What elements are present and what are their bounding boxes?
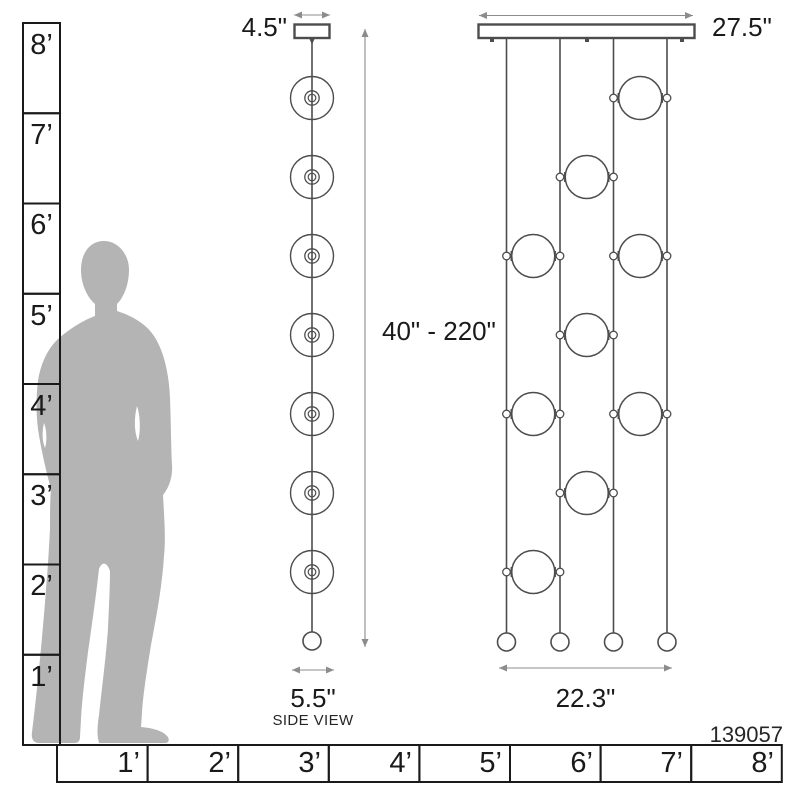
front-counterweight-ball [605,633,623,651]
horizontal-ruler-label-2ft: 2’ [148,745,231,782]
connector-ball [610,331,618,339]
front-glass-sphere [556,156,617,199]
canopy-screw [680,39,684,42]
height-range-label: 40" - 220" [382,317,552,345]
connector-ball [663,410,671,418]
connector-ball [503,410,511,418]
horizontal-ruler-label-8ft: 8’ [691,745,774,782]
connector-ball [556,252,564,260]
vertical-ruler-label-8ft: 8’ [23,29,60,61]
front-glass-sphere [556,314,617,357]
horizontal-ruler-label-5ft: 5’ [419,745,502,782]
horizontal-ruler-label-6ft: 6’ [510,745,593,782]
front-glass-sphere [503,393,564,436]
vertical-ruler-label-2ft: 2’ [23,570,60,602]
side-counterweight-ball [303,632,321,650]
canopy-screw [490,39,494,42]
front-glass-sphere [610,393,671,436]
horizontal-ruler-label-1ft: 1’ [57,745,140,782]
connector-ball [503,252,511,260]
connector-ball [556,568,564,576]
front-glass-sphere [503,235,564,278]
vertical-ruler-label-5ft: 5’ [23,300,60,332]
front-counterweight-ball [658,633,676,651]
vertical-ruler-label-7ft: 7’ [23,119,60,151]
vertical-ruler-label-1ft: 1’ [23,661,60,693]
front-counterweight-ball [551,633,569,651]
horizontal-ruler-label-3ft: 3’ [238,745,321,782]
connector-ball [503,568,511,576]
side-canopy-width-label: 4.5" [205,13,287,41]
product-code: 139057 [663,722,783,748]
connector-ball [610,173,618,181]
connector-ball [610,94,618,102]
connector-ball [663,94,671,102]
canopy-screw [585,39,589,42]
horizontal-ruler-label-4ft: 4’ [329,745,412,782]
front-canopy [479,25,695,39]
front-glass-sphere [610,77,671,120]
connector-ball [610,489,618,497]
connector-ball [663,252,671,260]
connector-ball [556,489,564,497]
vertical-ruler-label-4ft: 4’ [23,390,60,422]
connector-ball [556,410,564,418]
side-view-caption: SIDE VIEW [243,712,383,729]
connector-ball [556,173,564,181]
front-glass-sphere [556,472,617,515]
dimension-sheet: 8’ 7’ 6’ 5’ 4’ 3’ 2’ 1’ 1’ 2’ 3’ 4’ 5’ 6… [0,0,800,800]
connector-ball [610,410,618,418]
dimension-diagram [0,0,800,800]
side-view-drawing [291,25,334,651]
front-canopy-width-label: 27.5" [712,13,800,41]
front-spread-width-label: 22.3" [535,684,636,712]
side-fixture-width-label: 5.5" [263,684,363,712]
front-glass-sphere [610,235,671,278]
side-canopy [295,25,330,39]
connector-ball [556,331,564,339]
front-counterweight-ball [498,633,516,651]
connector-ball [610,252,618,260]
horizontal-ruler-label-7ft: 7’ [600,745,683,782]
vertical-ruler-label-6ft: 6’ [23,209,60,241]
front-glass-sphere [503,551,564,594]
vertical-ruler-label-3ft: 3’ [23,480,60,512]
